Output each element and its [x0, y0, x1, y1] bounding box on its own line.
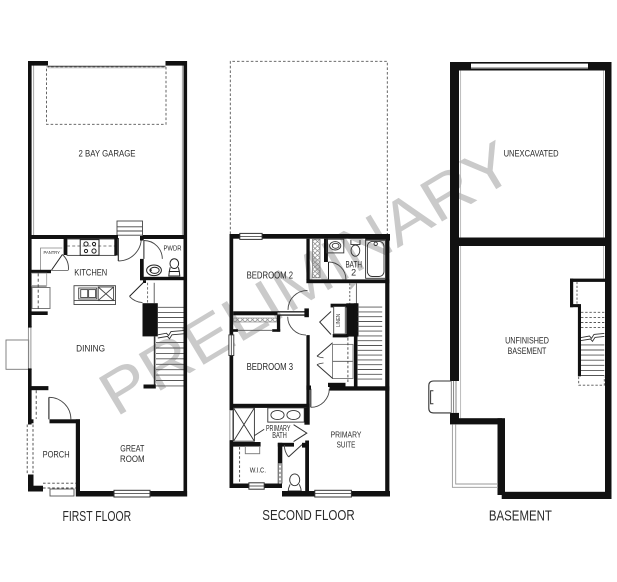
svg-text:ROOM: ROOM	[120, 454, 145, 464]
svg-text:BASEMENT: BASEMENT	[489, 507, 552, 524]
svg-text:2 BAY GARAGE: 2 BAY GARAGE	[79, 148, 136, 158]
svg-text:W.I.C.: W.I.C.	[250, 466, 266, 475]
svg-text:BEDROOM 3: BEDROOM 3	[247, 362, 294, 373]
svg-text:SUITE: SUITE	[337, 439, 356, 449]
svg-text:UNEXCAVATED: UNEXCAVATED	[504, 148, 559, 158]
svg-text:BASEMENT: BASEMENT	[508, 346, 547, 356]
svg-text:BATH: BATH	[272, 431, 287, 440]
svg-text:FIRST FLOOR: FIRST FLOOR	[63, 508, 132, 525]
svg-text:GREAT: GREAT	[120, 444, 144, 454]
svg-text:UNFINISHED: UNFINISHED	[505, 336, 549, 346]
svg-text:PORCH: PORCH	[43, 449, 70, 460]
svg-text:LINEN: LINEN	[336, 314, 342, 327]
svg-text:BEDROOM 2: BEDROOM 2	[247, 271, 294, 282]
svg-text:PWDR: PWDR	[164, 245, 182, 253]
svg-text:2: 2	[351, 267, 356, 277]
svg-text:SECOND FLOOR: SECOND FLOOR	[262, 508, 354, 524]
svg-text:PANTRY: PANTRY	[44, 250, 61, 255]
svg-text:PRIMARY: PRIMARY	[331, 429, 362, 439]
svg-text:KITCHEN: KITCHEN	[74, 267, 107, 278]
svg-text:DINING: DINING	[76, 344, 105, 355]
